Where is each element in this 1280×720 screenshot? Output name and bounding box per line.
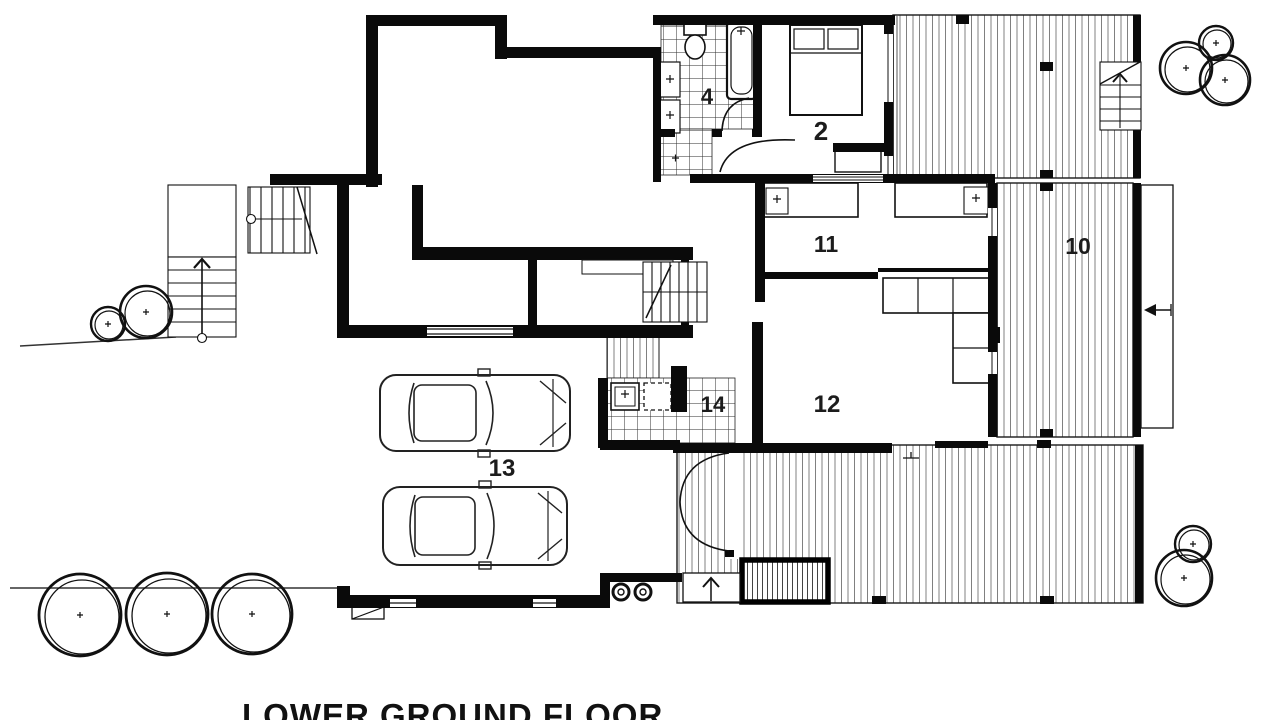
room-label-deck: 10 <box>1065 233 1091 259</box>
room-label-kitchen: 11 <box>814 231 839 257</box>
tree-pair-south-east <box>1156 526 1212 606</box>
deck-edge-wall <box>1135 445 1143 603</box>
deck-post <box>956 15 969 24</box>
wall <box>600 573 682 582</box>
stair-flight-walkway <box>607 333 659 378</box>
level-change-line <box>878 268 990 272</box>
plan-title: LOWER GROUND FLOOR <box>242 697 663 720</box>
bedroom-door-arc <box>720 140 795 172</box>
wall <box>337 595 610 608</box>
deck-post <box>1040 170 1053 178</box>
deck-edge-wall <box>1133 183 1141 437</box>
deck-post <box>1037 440 1051 448</box>
wall <box>753 15 762 133</box>
deck-planter <box>742 560 828 602</box>
deck-post <box>1040 429 1053 437</box>
deck-post <box>1040 596 1054 604</box>
car-1 <box>380 369 570 457</box>
deck-post <box>1040 183 1053 191</box>
stair-start-circle <box>198 334 207 343</box>
deck-room-10 <box>997 183 1133 437</box>
wall <box>600 440 680 450</box>
wall <box>337 586 350 597</box>
wall <box>752 129 762 137</box>
bin-2-inner <box>640 589 646 595</box>
room-label-bedroom: 2 <box>814 116 828 146</box>
wall <box>712 129 722 137</box>
wall <box>833 143 891 152</box>
tree-row-south-west <box>39 573 292 656</box>
wall <box>993 327 1000 343</box>
bathtub-inner <box>731 27 752 94</box>
wall <box>528 258 537 325</box>
bin-1 <box>613 584 629 600</box>
wall <box>752 322 763 443</box>
level-change-line <box>762 272 878 279</box>
garage-window <box>427 327 513 336</box>
bedroom-dresser <box>835 150 881 172</box>
room-label-laundry: 14 <box>701 392 726 417</box>
deck-post <box>872 596 886 604</box>
wall <box>653 129 675 137</box>
floor-plan-drawing: 4 2 11 10 12 14 13 LOWER GROUND FLOOR <box>0 0 1280 720</box>
bin-2 <box>635 584 651 600</box>
door-leaf-clearance <box>729 447 738 559</box>
bed-pillow-left <box>794 29 824 49</box>
wall-pier <box>671 366 687 412</box>
car-2 <box>383 481 567 569</box>
room-label-bathroom: 4 <box>701 84 714 109</box>
wall <box>598 378 608 448</box>
stair-circle <box>247 215 256 224</box>
tree-west-large <box>120 286 172 338</box>
side-entry-panel <box>1141 185 1173 428</box>
wall <box>495 47 661 58</box>
wall <box>337 185 349 333</box>
bed-pillow-right <box>828 29 858 49</box>
wall <box>653 47 661 182</box>
room-label-living: 12 <box>814 391 841 418</box>
wall <box>653 15 895 25</box>
wall <box>337 325 693 338</box>
wall <box>755 182 765 302</box>
wall <box>270 174 382 185</box>
washing-machine <box>644 383 671 410</box>
toilet-cistern <box>684 24 706 35</box>
room-label-garage: 13 <box>489 455 516 482</box>
kitchen-window <box>813 175 883 182</box>
bin-1-inner <box>618 589 624 595</box>
toilet-bowl <box>685 35 705 59</box>
floor-plan-page: 4 2 11 10 12 14 13 LOWER GROUND FLOOR <box>0 0 1280 720</box>
wall <box>412 247 693 260</box>
wall <box>366 15 507 26</box>
kitchen-island <box>883 278 990 313</box>
stair-landing <box>168 185 236 257</box>
door-jamb <box>725 446 734 453</box>
deck-post <box>1040 62 1053 71</box>
site-boundary-lines <box>10 337 346 588</box>
deck-step-bar <box>935 441 988 448</box>
tree-cluster-north-east <box>1160 26 1250 105</box>
wall <box>366 15 378 187</box>
wall <box>673 443 892 453</box>
